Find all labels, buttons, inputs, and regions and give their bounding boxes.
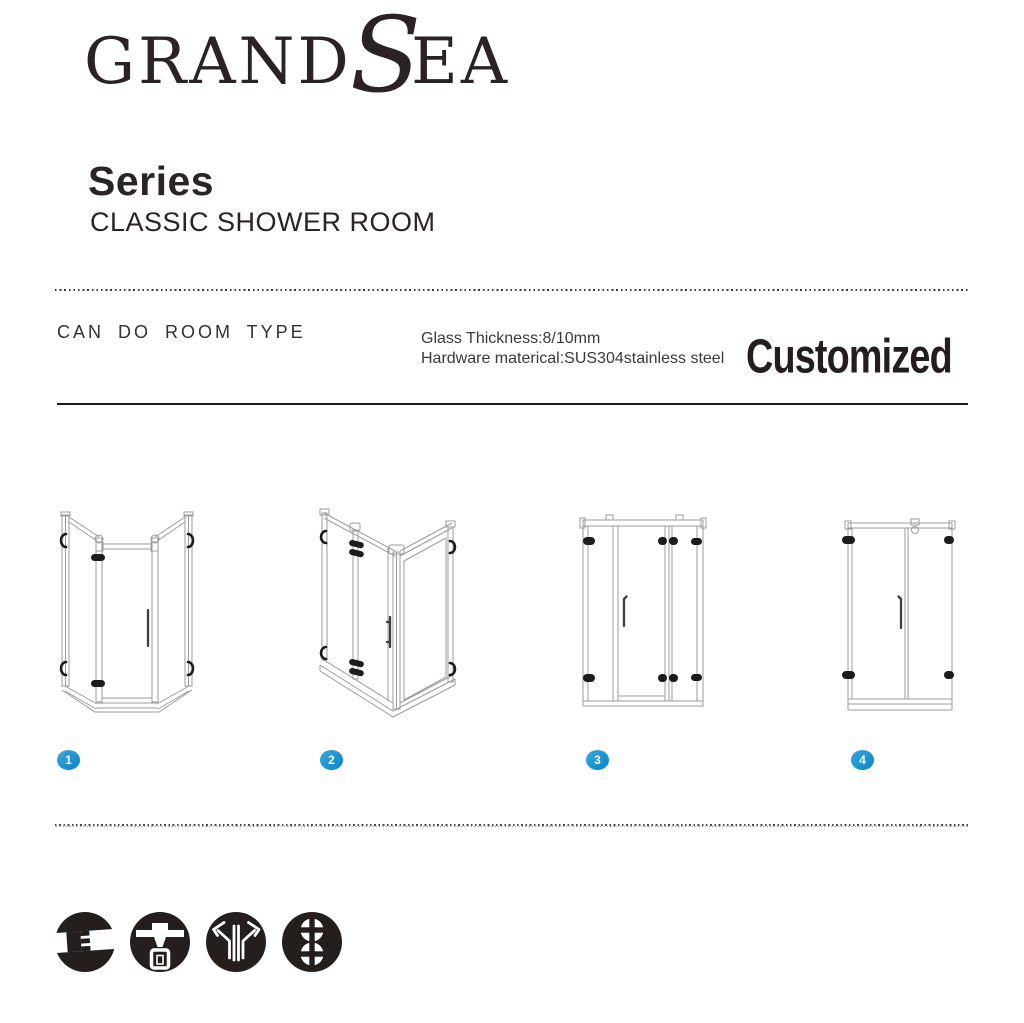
- inline-door-two-panels-icon: [575, 510, 710, 720]
- customized-label: Customized: [746, 328, 952, 384]
- room-type-2-badge: 2: [320, 750, 343, 770]
- room-type-2-drawing: [300, 495, 465, 750]
- glass-joint-icon: [53, 910, 117, 974]
- catalog-page: GRANDSEA Series CLASSIC SHOWER ROOM CAN …: [0, 0, 1024, 1023]
- glass-clamp-icon: [128, 910, 192, 974]
- logo-ea: EA: [411, 30, 510, 94]
- spec-text: Glass Thickness:8/10mm Hardware materica…: [421, 329, 724, 369]
- dotted-separator-top: [55, 289, 968, 291]
- series-title: Series: [88, 158, 214, 205]
- brand-logo: GRANDSEA: [84, 30, 510, 94]
- room-type-1-drawing: [52, 510, 202, 730]
- spec-hardware-material: Hardware materical:SUS304stainless steel: [421, 349, 724, 369]
- corner-shower-icon: [300, 495, 465, 750]
- hinged-door-panel-icon: [840, 510, 960, 725]
- double-roller-icon: [280, 910, 344, 974]
- section-heading: CAN DO ROOM TYPE: [57, 322, 306, 343]
- page-subtitle: CLASSIC SHOWER ROOM: [90, 207, 436, 238]
- logo-grand: GRAND: [84, 30, 352, 94]
- spec-glass-thickness: Glass Thickness:8/10mm: [421, 329, 724, 349]
- neo-angle-shower-icon: [52, 510, 202, 730]
- room-type-1-badge: 1: [57, 750, 80, 770]
- dotted-separator-bottom: [55, 824, 968, 827]
- room-type-3-drawing: [575, 510, 710, 720]
- hinge-support-icon: [204, 910, 268, 974]
- solid-separator: [57, 403, 968, 405]
- room-type-4-drawing: [840, 510, 960, 725]
- room-type-3-badge: 3: [586, 750, 609, 770]
- room-type-4-badge: 4: [851, 750, 874, 770]
